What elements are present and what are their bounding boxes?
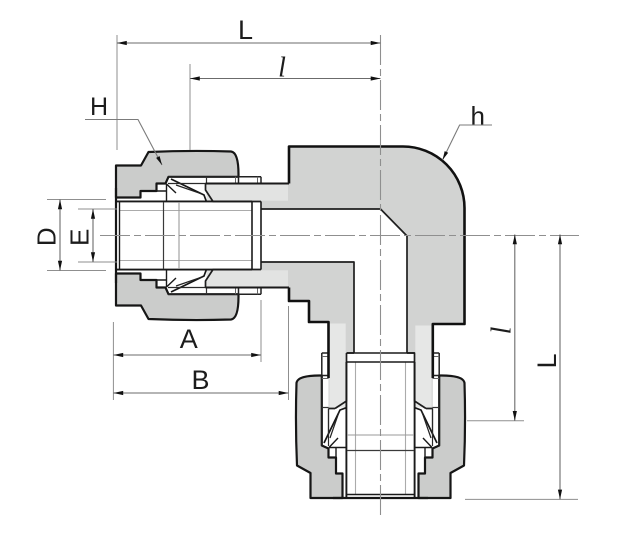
svg-text:E: E — [64, 229, 94, 246]
svg-text:L: L — [532, 353, 562, 368]
svg-text:B: B — [191, 365, 209, 395]
svg-text:L: L — [238, 15, 253, 45]
svg-text:D: D — [32, 227, 62, 246]
svg-text:l: l — [487, 326, 518, 334]
svg-text:l: l — [278, 53, 286, 84]
svg-text:H: H — [90, 93, 108, 121]
svg-text:A: A — [180, 324, 198, 354]
svg-text:h: h — [470, 101, 484, 131]
